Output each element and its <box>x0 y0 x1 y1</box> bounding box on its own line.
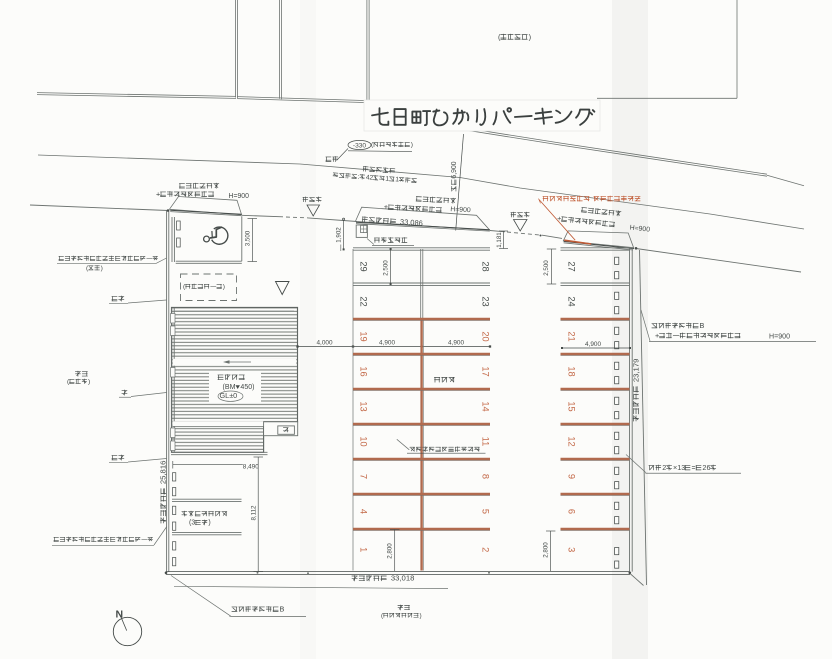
svg-text:14: 14 <box>481 401 491 411</box>
svg-text:2: 2 <box>662 463 666 472</box>
svg-text:): ) <box>420 612 422 619</box>
svg-text:): ) <box>208 520 210 527</box>
svg-text:5: 5 <box>481 509 491 514</box>
svg-text:22: 22 <box>359 296 369 306</box>
svg-text:4,900: 4,900 <box>585 341 601 348</box>
svg-text:10: 10 <box>359 436 369 446</box>
svg-text:(3: (3 <box>189 520 195 527</box>
svg-text:6: 6 <box>567 509 577 514</box>
svg-text:×13: ×13 <box>673 463 685 472</box>
svg-text:H=900: H=900 <box>229 193 250 200</box>
svg-text:H=900: H=900 <box>450 206 471 214</box>
svg-text:2,500: 2,500 <box>543 260 550 276</box>
svg-text:N: N <box>116 609 124 621</box>
svg-text:+: + <box>384 202 389 211</box>
svg-text:24: 24 <box>567 296 577 306</box>
svg-text:13: 13 <box>359 401 369 411</box>
svg-text:28: 28 <box>481 261 491 271</box>
svg-text:27: 27 <box>567 261 577 271</box>
svg-text:8,112: 8,112 <box>251 505 258 521</box>
svg-text:): ) <box>88 378 90 385</box>
svg-text:19: 19 <box>359 331 369 341</box>
svg-text:H=900: H=900 <box>769 334 790 341</box>
svg-text:21: 21 <box>567 331 577 341</box>
svg-text:1,902: 1,902 <box>335 227 342 243</box>
svg-text:+: + <box>156 189 160 198</box>
svg-text:16: 16 <box>359 366 369 376</box>
svg-text:9: 9 <box>567 474 577 479</box>
svg-text:11: 11 <box>481 437 491 447</box>
svg-text:33,018: 33,018 <box>391 574 415 583</box>
svg-text:+: + <box>655 331 659 340</box>
svg-text:1,181: 1,181 <box>496 232 503 248</box>
svg-text:4,900: 4,900 <box>379 339 395 346</box>
svg-text:2,800: 2,800 <box>543 542 550 558</box>
svg-text:2: 2 <box>481 547 491 552</box>
svg-text:B: B <box>280 604 285 613</box>
svg-text:8,490: 8,490 <box>243 463 259 470</box>
svg-text:=: = <box>691 463 695 472</box>
svg-text:12: 12 <box>567 436 577 446</box>
svg-text:23: 23 <box>481 296 491 306</box>
svg-text:6,900: 6,900 <box>451 161 458 178</box>
svg-text:26: 26 <box>702 463 710 472</box>
svg-text:2,500: 2,500 <box>383 260 390 276</box>
svg-text:8: 8 <box>481 474 491 479</box>
svg-text:18: 18 <box>567 366 577 376</box>
svg-text:4: 4 <box>359 509 369 514</box>
svg-text:4,900: 4,900 <box>448 339 464 346</box>
svg-text:20: 20 <box>481 331 491 341</box>
svg-text:42: 42 <box>366 174 374 182</box>
svg-text:17: 17 <box>481 366 491 376</box>
svg-text:23,179: 23,179 <box>631 359 640 383</box>
svg-text:33,086: 33,086 <box>400 217 423 228</box>
svg-text:4,000: 4,000 <box>317 339 333 346</box>
svg-text:2,800: 2,800 <box>387 543 394 559</box>
svg-text:): ) <box>101 265 103 272</box>
svg-text:): ) <box>223 283 225 290</box>
svg-text:450): 450) <box>240 384 254 391</box>
svg-text:25,816: 25,816 <box>159 461 168 485</box>
svg-text:3,500: 3,500 <box>245 230 252 246</box>
svg-text:1: 1 <box>359 547 369 552</box>
svg-text:7: 7 <box>359 474 369 479</box>
svg-text:15: 15 <box>567 401 577 411</box>
svg-text:): ) <box>411 142 413 149</box>
svg-text:-330: -330 <box>353 143 367 150</box>
svg-text:3: 3 <box>567 547 577 552</box>
svg-text:29: 29 <box>359 261 369 271</box>
svg-text:B: B <box>700 321 705 330</box>
